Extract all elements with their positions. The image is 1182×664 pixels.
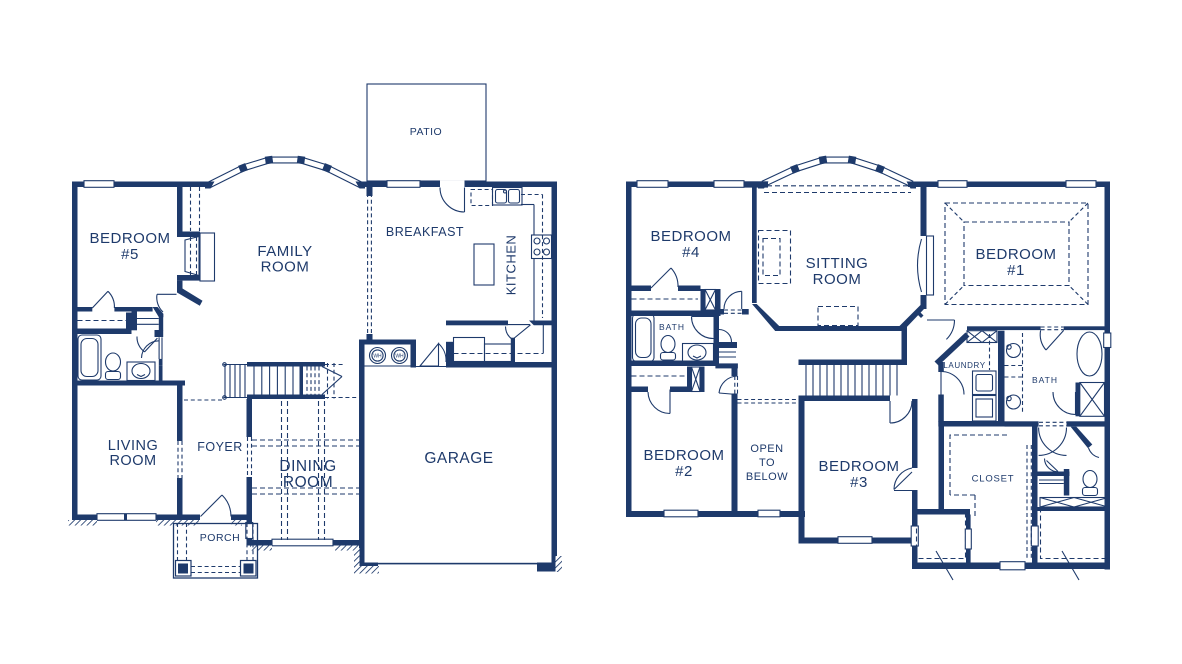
svg-text:BELOW: BELOW: [746, 471, 788, 483]
svg-text:#2: #2: [675, 463, 693, 480]
svg-text:#1: #1: [1007, 262, 1025, 279]
svg-text:#5: #5: [121, 246, 139, 263]
svg-text:#4: #4: [682, 244, 700, 261]
svg-text:SITTING: SITTING: [806, 255, 869, 272]
svg-text:LAUNDRY: LAUNDRY: [943, 361, 985, 370]
svg-text:PORCH: PORCH: [200, 532, 240, 544]
svg-text:BATH: BATH: [659, 322, 685, 332]
svg-text:ROOM: ROOM: [283, 474, 333, 491]
svg-text:BEDROOM: BEDROOM: [975, 246, 1056, 263]
svg-text:FOYER: FOYER: [197, 440, 243, 454]
svg-text:BATH: BATH: [1032, 375, 1058, 385]
svg-text:GARAGE: GARAGE: [424, 450, 493, 467]
svg-text:ROOM: ROOM: [261, 259, 310, 276]
svg-text:LIVING: LIVING: [108, 438, 159, 454]
svg-text:DINING: DINING: [279, 458, 336, 475]
svg-text:WH: WH: [395, 353, 404, 359]
svg-text:PATIO: PATIO: [410, 126, 442, 138]
svg-text:ROOM: ROOM: [813, 271, 862, 288]
svg-text:WH: WH: [373, 353, 382, 359]
svg-text:BEDROOM: BEDROOM: [818, 458, 899, 475]
svg-text:FAMILY: FAMILY: [257, 243, 312, 260]
svg-text:#3: #3: [850, 474, 868, 491]
svg-text:BREAKFAST: BREAKFAST: [386, 225, 464, 239]
svg-text:BEDROOM: BEDROOM: [89, 230, 170, 247]
svg-text:ROOM: ROOM: [109, 453, 156, 469]
svg-text:CLOSET: CLOSET: [972, 474, 1015, 485]
svg-text:KITCHEN: KITCHEN: [504, 235, 519, 296]
svg-text:OPEN: OPEN: [750, 443, 783, 455]
svg-text:BEDROOM: BEDROOM: [650, 228, 731, 245]
svg-text:TO: TO: [759, 457, 775, 469]
svg-text:BEDROOM: BEDROOM: [643, 447, 724, 464]
